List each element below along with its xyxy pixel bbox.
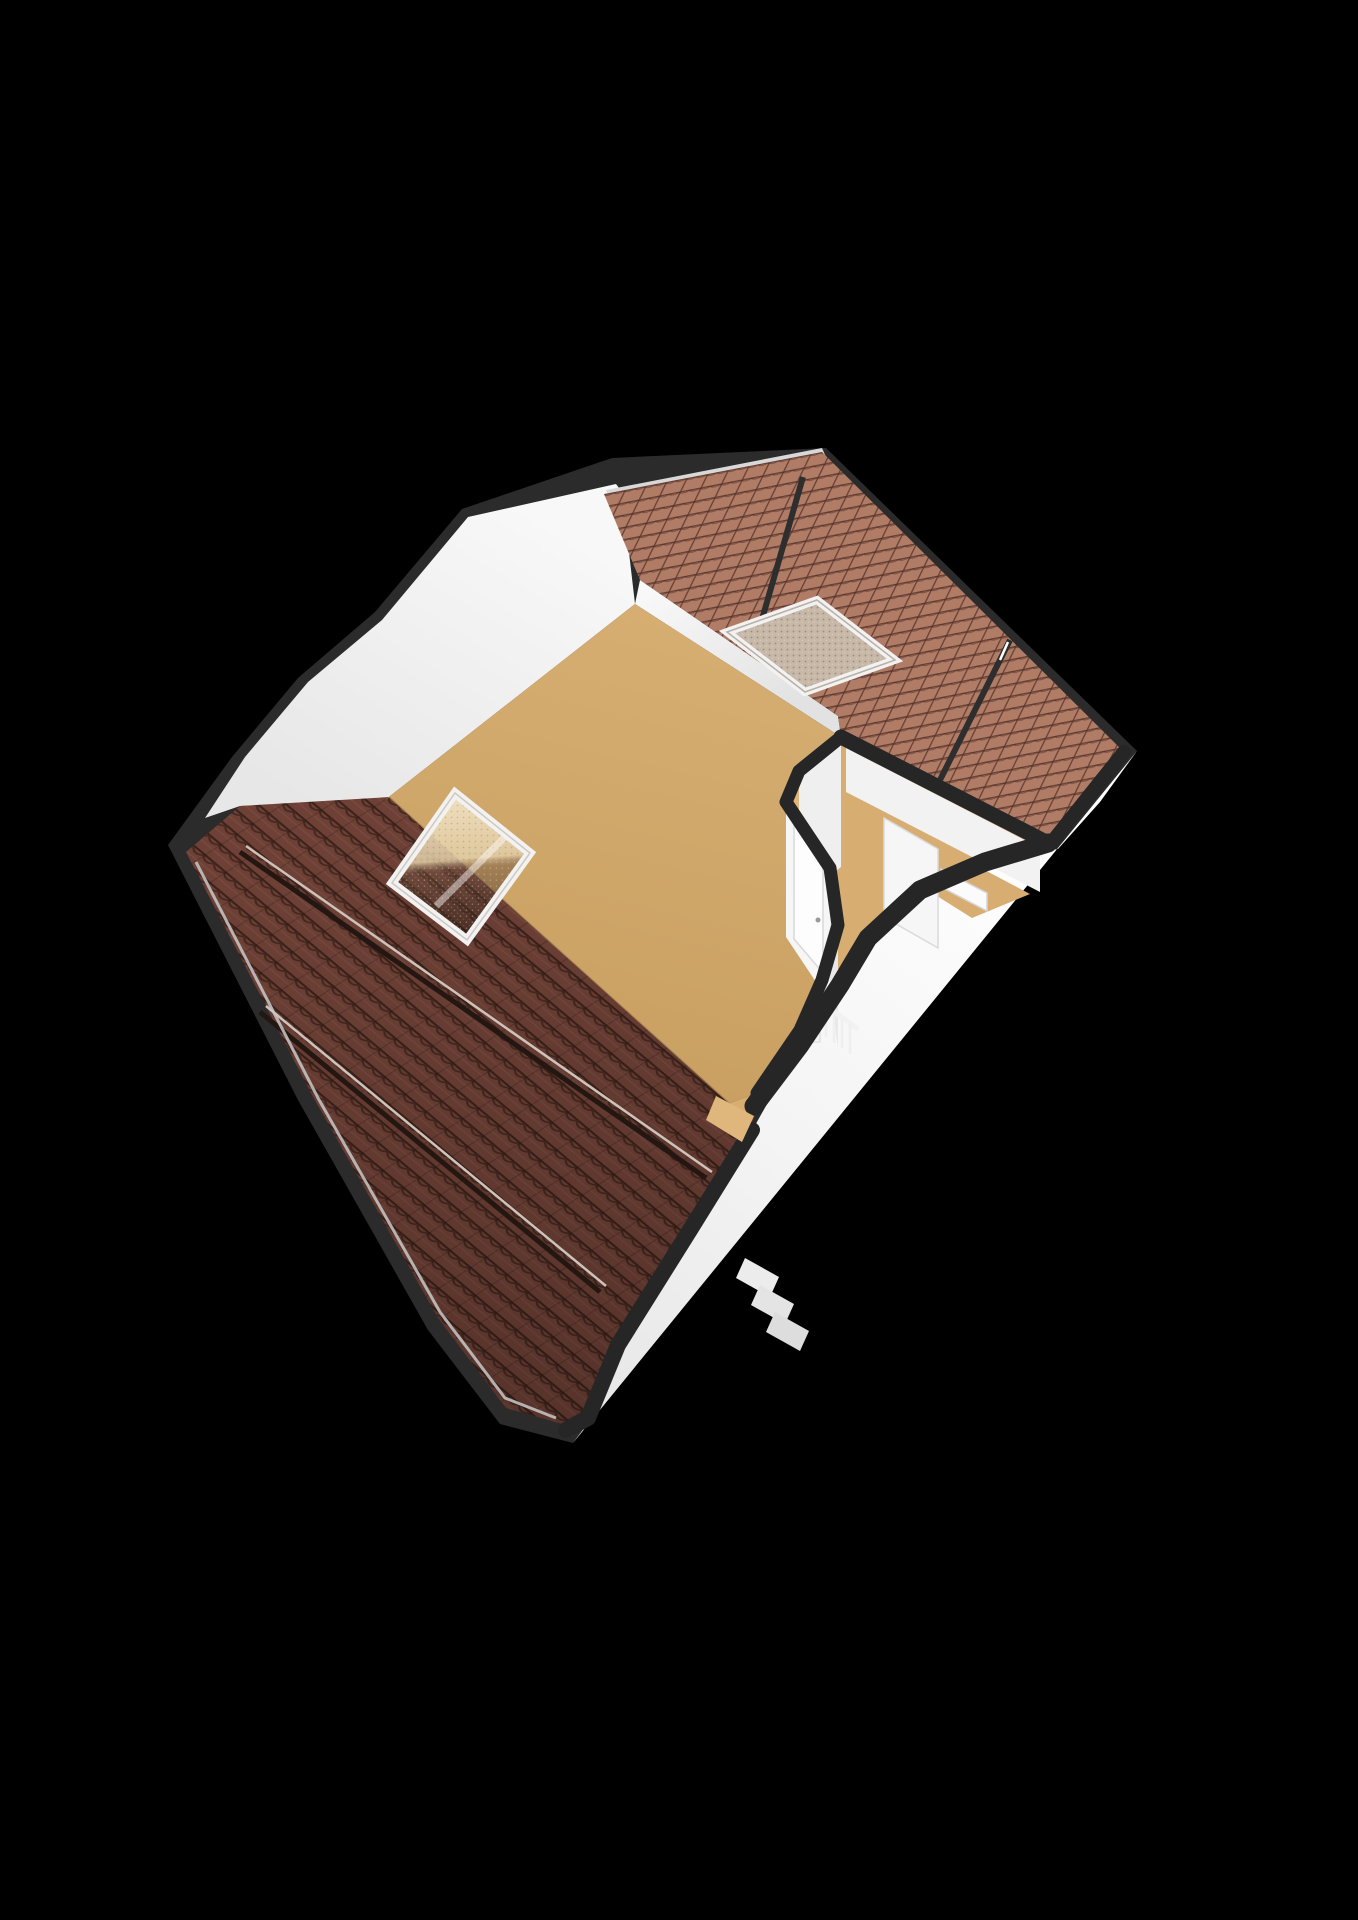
- screenshot-canvas: [0, 0, 1358, 1920]
- floorplan-3d-render: [0, 0, 1358, 1920]
- door-handle: [816, 918, 821, 923]
